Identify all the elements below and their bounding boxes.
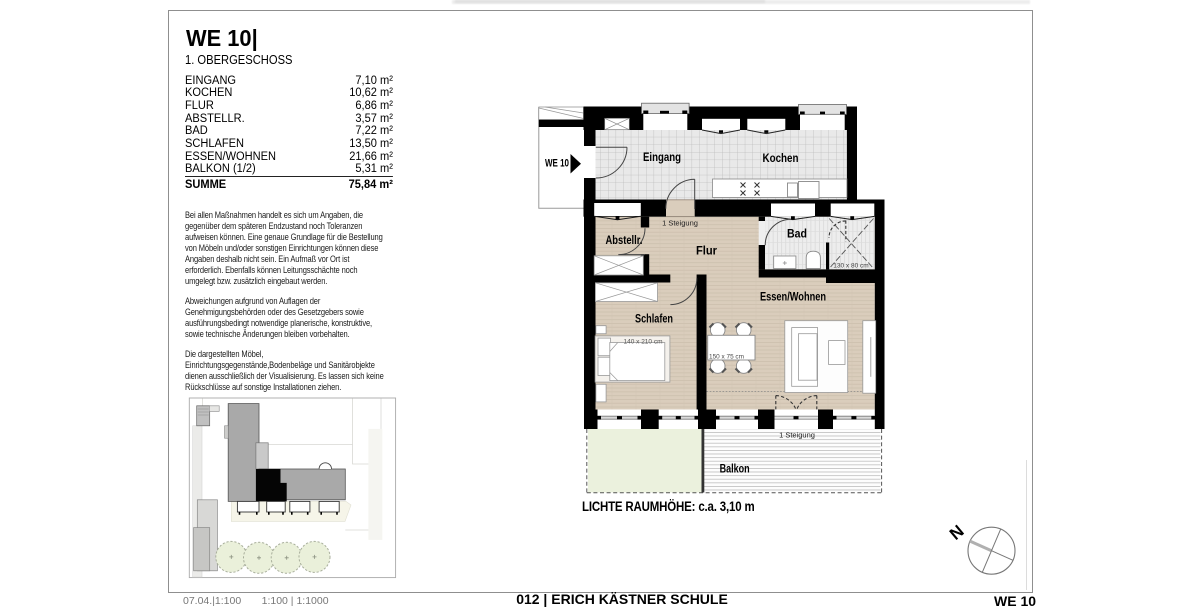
svg-text:150 x 75 cm: 150 x 75 cm <box>709 354 744 361</box>
svg-text:1 Steigung: 1 Steigung <box>779 430 815 439</box>
svg-text:Balkon: Balkon <box>720 464 750 476</box>
svg-text:Essen/Wohnen: Essen/Wohnen <box>760 292 826 304</box>
svg-text:Flur: Flur <box>696 246 717 258</box>
svg-text:Bad: Bad <box>787 229 807 241</box>
svg-text:Abstellr.: Abstellr. <box>606 235 643 247</box>
svg-text:140 x 210 cm: 140 x 210 cm <box>623 339 662 346</box>
svg-text:N: N <box>946 521 968 543</box>
svg-text:Eingang: Eingang <box>643 152 681 164</box>
svg-text:Schlafen: Schlafen <box>635 314 673 326</box>
svg-text:WE 10: WE 10 <box>545 158 569 170</box>
svg-text:130 x 80 cm: 130 x 80 cm <box>833 263 868 270</box>
svg-text:Kochen: Kochen <box>763 153 799 165</box>
svg-text:1 Steigung: 1 Steigung <box>662 218 698 227</box>
